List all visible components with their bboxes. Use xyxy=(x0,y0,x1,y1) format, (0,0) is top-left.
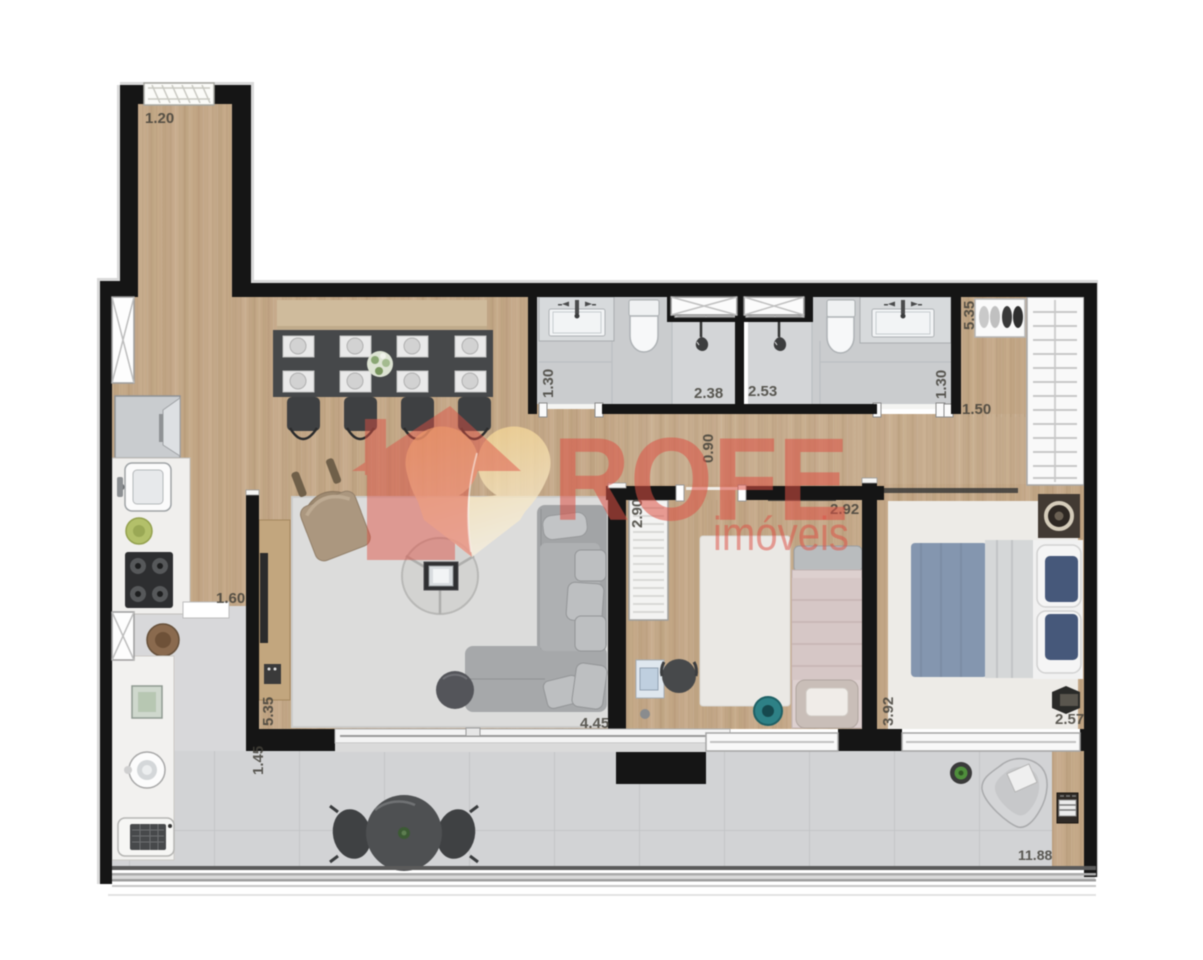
svg-text:4.45: 4.45 xyxy=(580,715,609,732)
svg-text:3.92: 3.92 xyxy=(880,697,897,726)
svg-text:1.20: 1.20 xyxy=(145,110,174,127)
svg-text:imóveis: imóveis xyxy=(713,507,849,560)
svg-text:1.50: 1.50 xyxy=(962,401,991,418)
svg-text:5.35: 5.35 xyxy=(260,697,277,726)
svg-text:1.45: 1.45 xyxy=(250,746,267,775)
svg-text:5.35: 5.35 xyxy=(961,301,978,330)
svg-text:1.30: 1.30 xyxy=(540,369,557,398)
svg-text:2.38: 2.38 xyxy=(694,385,723,402)
svg-text:1.60: 1.60 xyxy=(216,590,245,607)
svg-text:2.57: 2.57 xyxy=(1055,711,1084,728)
svg-text:1.30: 1.30 xyxy=(933,370,950,399)
svg-text:2.53: 2.53 xyxy=(748,383,777,400)
svg-text:11.88: 11.88 xyxy=(1018,847,1052,863)
